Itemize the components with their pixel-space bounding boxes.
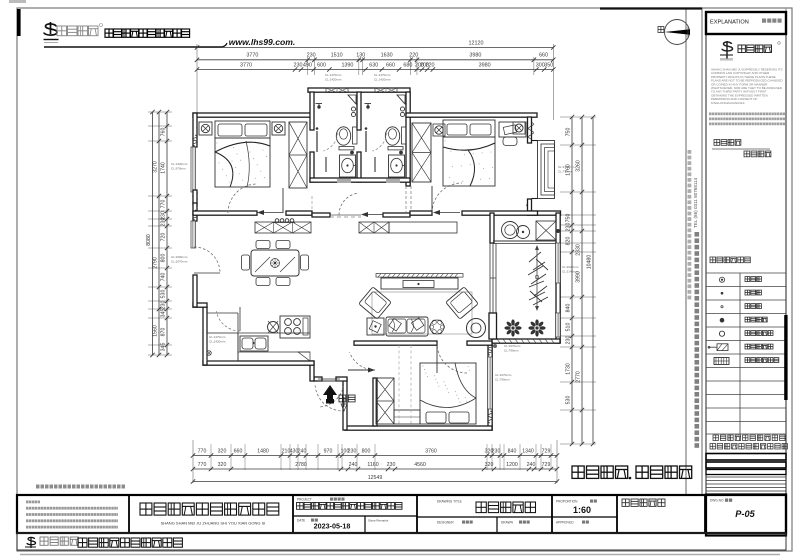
- svg-text:240: 240: [298, 449, 307, 455]
- svg-text:840: 840: [508, 449, 517, 455]
- svg-text:660: 660: [234, 449, 243, 455]
- svg-text:1390: 1390: [341, 63, 353, 69]
- svg-text:800: 800: [161, 254, 167, 263]
- svg-text:1730: 1730: [566, 363, 572, 375]
- svg-text:600: 600: [317, 63, 326, 69]
- svg-text:320: 320: [218, 462, 227, 468]
- svg-text:2780: 2780: [295, 462, 307, 468]
- svg-text:510: 510: [566, 323, 572, 332]
- svg-text:750: 750: [566, 128, 572, 137]
- svg-text:230: 230: [387, 462, 396, 468]
- svg-text:3770: 3770: [240, 63, 252, 69]
- svg-text:1480: 1480: [257, 449, 269, 455]
- svg-text:1560: 1560: [153, 325, 159, 337]
- svg-text:DATE: DATE: [297, 519, 305, 523]
- svg-text:3270: 3270: [153, 161, 159, 173]
- svg-text:CL:1420mm: CL:1420mm: [374, 78, 391, 82]
- svg-text:TEL (86) 0311 80768114: TEL (86) 0311 80768114: [693, 177, 698, 228]
- svg-text:CL:1470mm: CL:1470mm: [374, 73, 391, 77]
- svg-text:Show Remarks: Show Remarks: [368, 519, 389, 523]
- svg-text:8080: 8080: [146, 234, 152, 246]
- svg-text:660: 660: [539, 53, 548, 59]
- svg-text:DRAWING TITLE: DRAWING TITLE: [437, 500, 462, 504]
- svg-text:1340: 1340: [522, 449, 534, 455]
- svg-text:CL:2000mm: CL:2000mm: [171, 255, 188, 259]
- svg-text:230: 230: [348, 449, 357, 455]
- svg-text:3980: 3980: [479, 63, 491, 69]
- svg-text:CL:790mm: CL:790mm: [495, 378, 510, 382]
- svg-text:CL:1420mm: CL:1420mm: [171, 162, 188, 166]
- svg-text:230: 230: [294, 63, 303, 69]
- svg-text:DWG.NO: DWG.NO: [710, 499, 724, 503]
- svg-text:1:60: 1:60: [573, 505, 591, 515]
- svg-text:DESIGNER: DESIGNER: [437, 521, 454, 525]
- svg-text:820: 820: [566, 237, 572, 246]
- svg-text:680: 680: [403, 63, 412, 69]
- svg-text:CL:2070mm: CL:2070mm: [171, 260, 188, 264]
- svg-text:CL:970mm: CL:970mm: [171, 167, 186, 171]
- svg-text:1630: 1630: [381, 53, 393, 59]
- svg-text:4560: 4560: [414, 462, 426, 468]
- svg-text:840: 840: [566, 304, 572, 313]
- svg-text:130: 130: [356, 53, 365, 59]
- svg-text:1740: 1740: [161, 162, 167, 174]
- svg-text:PROJECT: PROJECT: [297, 498, 312, 502]
- svg-text:770: 770: [198, 462, 207, 468]
- svg-text:CL:1470mm: CL:1470mm: [209, 335, 226, 339]
- svg-text:530: 530: [161, 290, 167, 299]
- svg-text:CL:1420mm: CL:1420mm: [209, 340, 226, 344]
- svg-text:2770: 2770: [576, 371, 582, 383]
- svg-text:530: 530: [566, 396, 572, 405]
- svg-text:970: 970: [324, 449, 333, 455]
- svg-text:12120: 12120: [469, 41, 484, 47]
- svg-text:2023-05-18: 2023-05-18: [314, 522, 351, 531]
- svg-text:CL:2140mm: CL:2140mm: [558, 165, 575, 169]
- svg-text:10480: 10480: [587, 255, 593, 270]
- svg-text:350: 350: [544, 63, 553, 69]
- svg-text:CL:1420mm: CL:1420mm: [325, 78, 342, 82]
- svg-text:KINGLONGZHUANGSHI: KINGLONGZHUANGSHI: [711, 101, 745, 105]
- svg-text:3760: 3760: [425, 449, 437, 455]
- svg-text:CL:770mm: CL:770mm: [558, 170, 573, 174]
- svg-text:660: 660: [386, 63, 395, 69]
- svg-text:770: 770: [161, 200, 167, 209]
- svg-text:SHANG SHAN MEI JU ZHUANG SHI Y: SHANG SHAN MEI JU ZHUANG SHI YOU XIAN GO…: [161, 521, 266, 526]
- svg-text:230: 230: [307, 53, 316, 59]
- svg-text:220: 220: [426, 63, 435, 69]
- svg-text:CL:790mm: CL:790mm: [504, 349, 519, 353]
- svg-text:490: 490: [303, 63, 312, 69]
- svg-text:CL:1670mm: CL:1670mm: [504, 344, 521, 348]
- svg-text:CL:1670mm: CL:1670mm: [495, 373, 512, 377]
- svg-text:630: 630: [369, 63, 378, 69]
- svg-text:PROPORTION: PROPORTION: [556, 500, 578, 504]
- svg-text:1200: 1200: [506, 462, 518, 468]
- svg-text:DRAWN: DRAWN: [501, 521, 514, 525]
- svg-text:3260: 3260: [576, 160, 582, 172]
- svg-text:870: 870: [161, 328, 167, 337]
- svg-text:720: 720: [161, 233, 167, 242]
- svg-text:P-05: P-05: [735, 509, 755, 519]
- svg-text:CL:2140mm: CL:2140mm: [562, 270, 579, 274]
- svg-text:2330: 2330: [576, 244, 582, 256]
- svg-text:1510: 1510: [331, 53, 343, 59]
- svg-text:740: 740: [161, 273, 167, 282]
- svg-text:770: 770: [198, 449, 207, 455]
- svg-text:12549: 12549: [368, 475, 383, 481]
- svg-text:230: 230: [492, 449, 501, 455]
- svg-text:EXPLANATION: EXPLANATION: [710, 20, 749, 26]
- svg-text:CL:1470mm: CL:1470mm: [325, 73, 342, 77]
- svg-text:760: 760: [161, 128, 167, 137]
- svg-text:3770: 3770: [246, 53, 258, 59]
- svg-text:800: 800: [362, 449, 371, 455]
- svg-text:1160: 1160: [367, 462, 378, 468]
- svg-text:2790: 2790: [153, 257, 159, 269]
- svg-text:CL:2020mm: CL:2020mm: [562, 265, 579, 269]
- svg-text:320: 320: [218, 449, 227, 455]
- svg-text:APPROVED: APPROVED: [556, 521, 574, 525]
- svg-text:www.lhs99.com.: www.lhs99.com.: [229, 37, 296, 47]
- svg-text:3980: 3980: [469, 53, 481, 59]
